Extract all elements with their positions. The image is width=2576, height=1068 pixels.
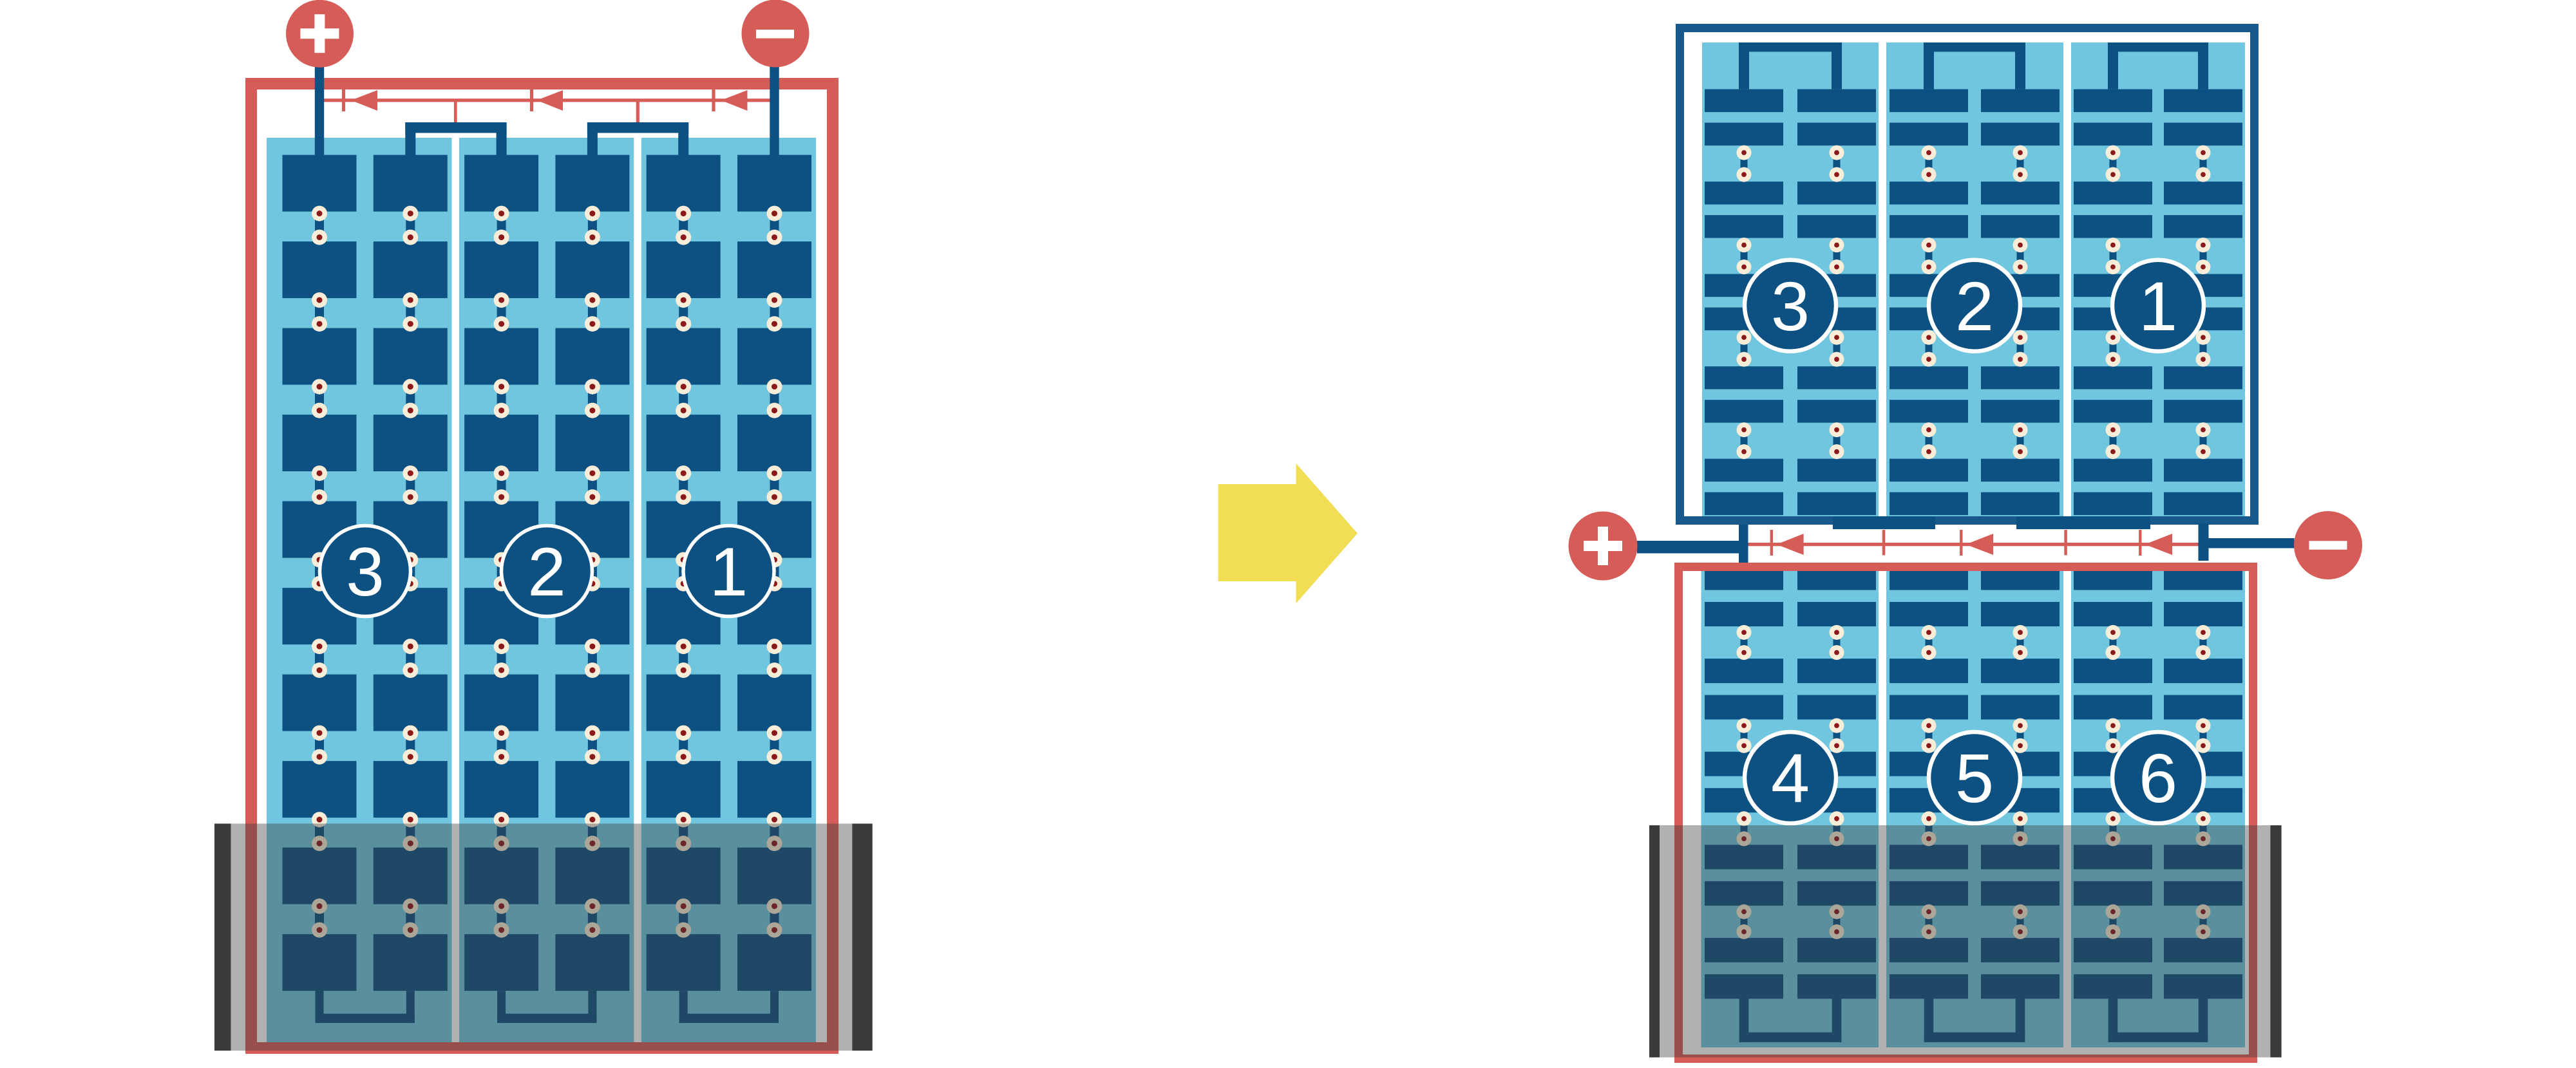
svg-text:5: 5	[1955, 739, 1994, 817]
svg-text:2: 2	[1955, 267, 1994, 345]
svg-text:6: 6	[2139, 739, 2177, 817]
svg-text:1: 1	[2139, 267, 2177, 345]
svg-text:3: 3	[346, 533, 384, 610]
svg-text:3: 3	[1771, 267, 1810, 345]
svg-text:2: 2	[527, 533, 566, 610]
svg-text:1: 1	[710, 533, 748, 610]
svg-text:4: 4	[1771, 739, 1810, 817]
